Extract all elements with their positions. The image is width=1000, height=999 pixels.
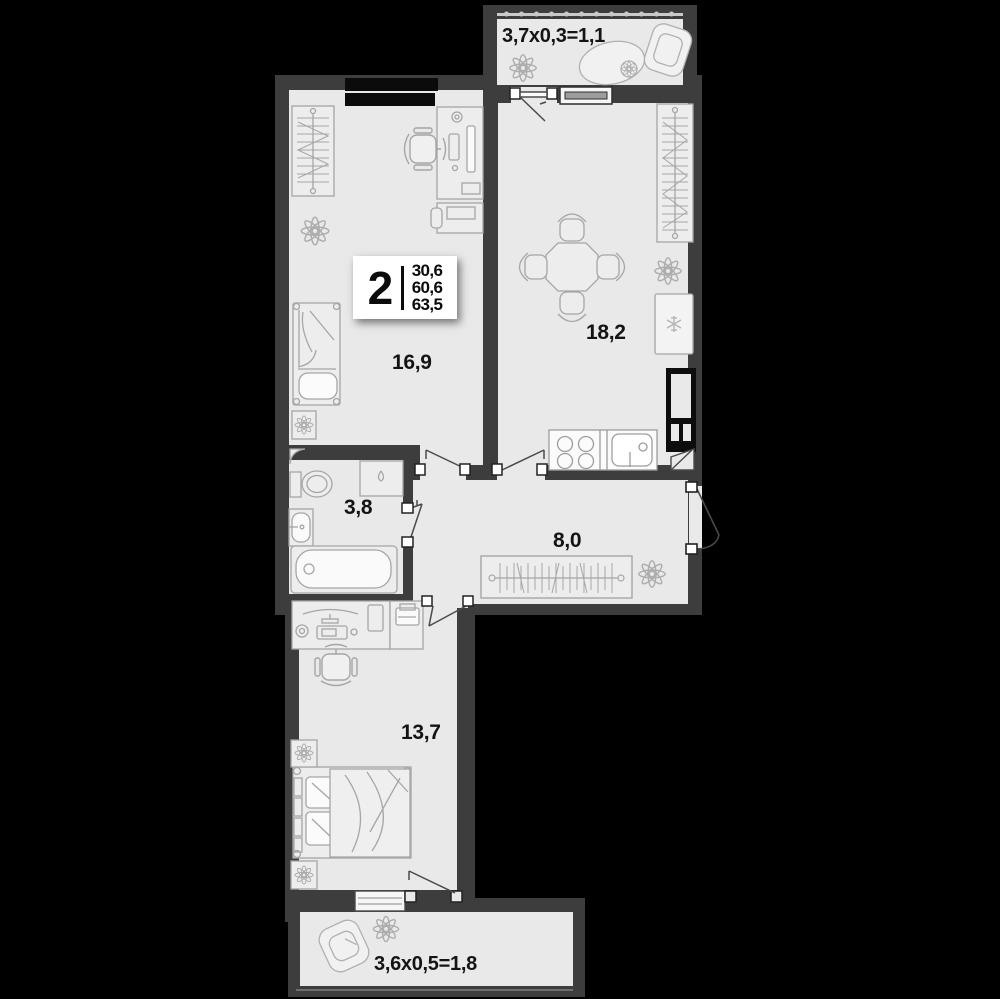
floor-bedroom [299,606,457,890]
balcony-top-area-label: 3,7x0,3=1,1 [502,25,605,48]
wall-niche-bar [345,93,435,106]
rooms-count: 2 [368,265,394,311]
floor-living-room-ext [420,445,483,467]
wall-niche-bar [345,78,438,91]
badge-areas: 30,6 60,6 63,5 [412,262,443,313]
floor-hallway [413,480,688,604]
doorway-bedroom [428,598,468,608]
area-living: 30,6 [412,262,443,279]
doorway-balcony-top [511,87,557,103]
doorway-living-room [420,465,466,480]
living-room-area-label: 16,9 [392,351,432,375]
floor-bathroom [289,460,403,594]
kitchen-area-label: 18,2 [586,321,626,345]
balcony-bottom-railing [296,989,573,991]
floor-kitchen [498,103,688,470]
floorplan: 3,7x0,3=1,1 16,9 18,2 3,8 8,0 13,7 3,6x0… [0,0,1000,999]
hallway-area-label: 8,0 [553,529,581,553]
area-main: 60,6 [412,279,443,296]
bathroom-area-label: 3,8 [344,496,372,520]
doorway-bathroom [403,513,414,539]
bedroom-area-label: 13,7 [401,721,441,745]
badge-divider [401,266,404,310]
balcony-bottom-area-label: 3,6x0,5=1,8 [374,953,477,976]
area-total: 63,5 [412,296,443,313]
doorway-kitchen [497,465,545,480]
balcony-top-railing-posts [497,9,683,19]
doorway-entrance [689,486,702,548]
apartment-info-badge: 2 30,6 60,6 63,5 [353,256,457,319]
